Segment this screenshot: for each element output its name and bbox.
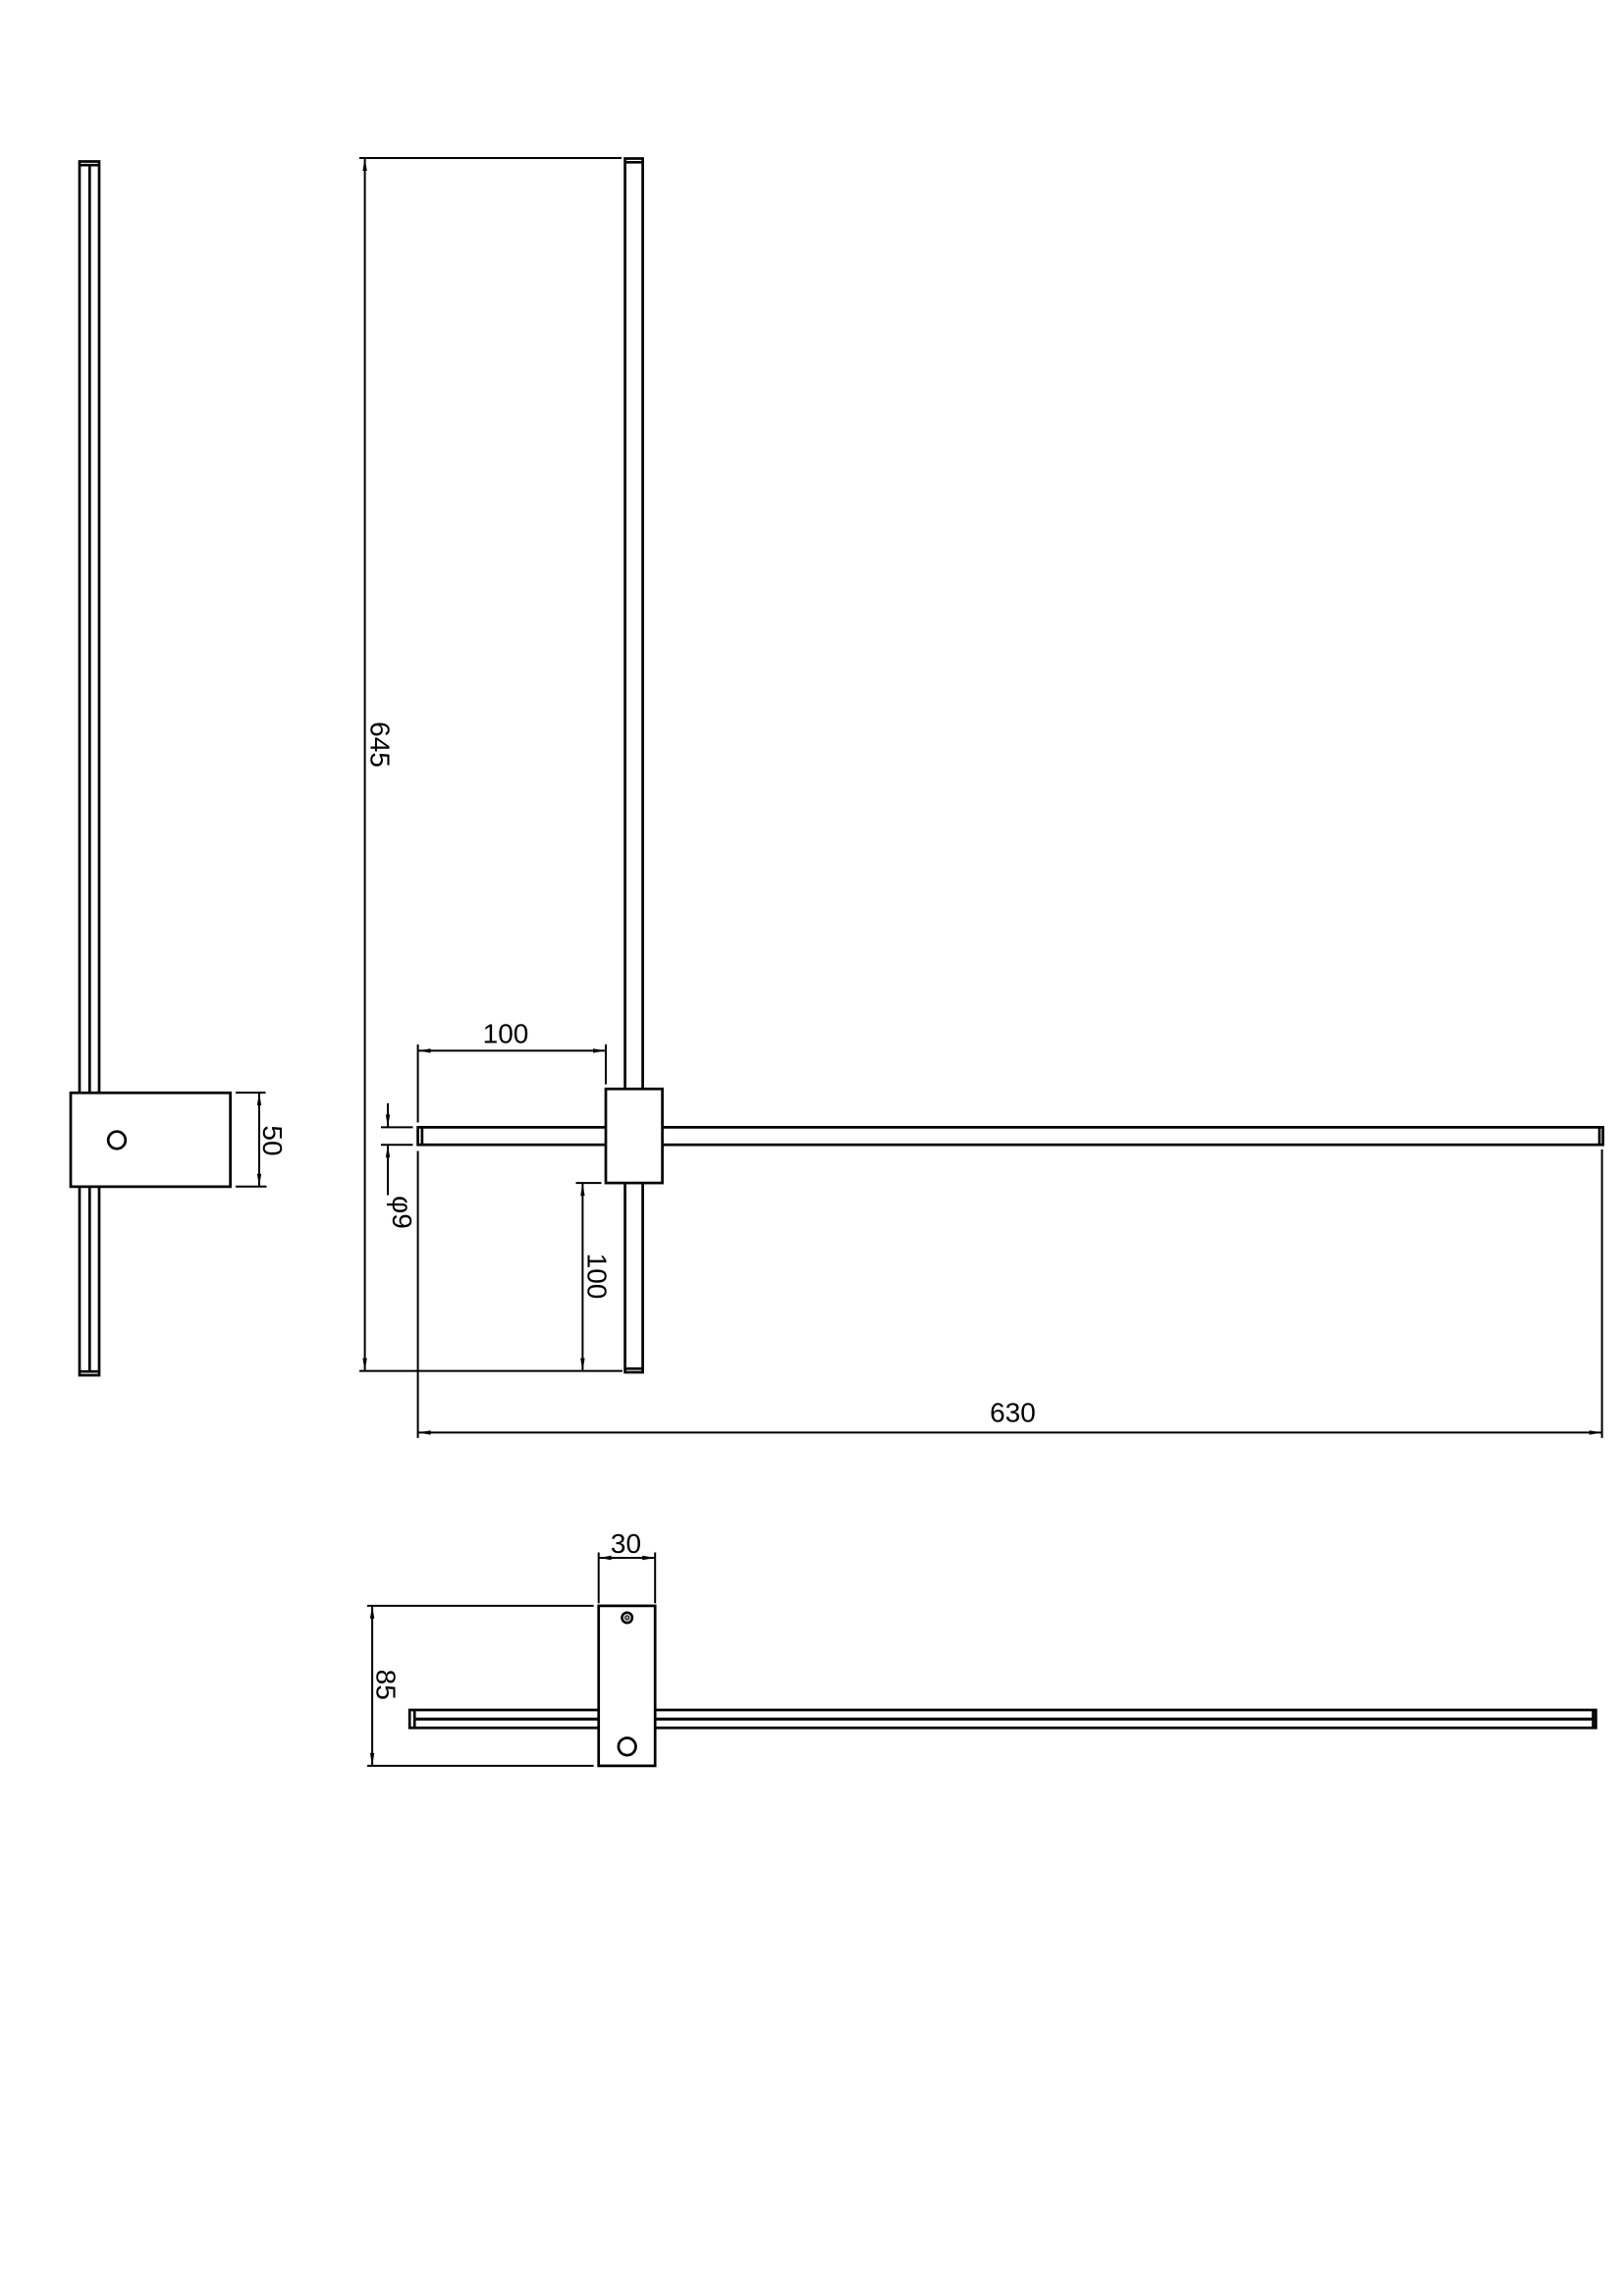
svg-text:30: 30 bbox=[611, 1528, 641, 1559]
svg-text:φ9: φ9 bbox=[387, 1196, 417, 1229]
svg-text:100: 100 bbox=[483, 1018, 529, 1048]
svg-text:630: 630 bbox=[990, 1397, 1036, 1427]
svg-text:85: 85 bbox=[371, 1670, 402, 1700]
svg-text:50: 50 bbox=[257, 1125, 288, 1155]
svg-text:100: 100 bbox=[582, 1254, 613, 1300]
svg-text:645: 645 bbox=[365, 721, 396, 768]
